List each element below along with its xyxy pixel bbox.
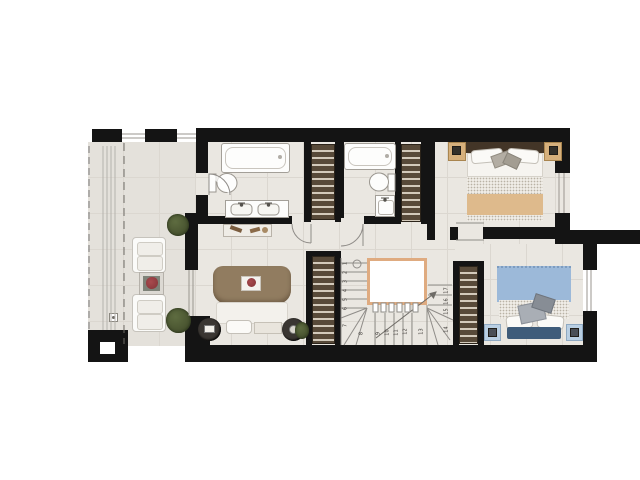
terrace-railing-lines [89, 143, 124, 344]
stair-step-number: 6 [344, 304, 349, 314]
stair-step-number: 9 [377, 329, 382, 339]
stair-circle-symbol [353, 260, 361, 268]
tub-drain-2 [385, 154, 389, 158]
stair-step-number: 10 [386, 328, 391, 338]
stair-step-number: 7 [344, 321, 349, 331]
linework-svg [0, 0, 640, 480]
floor-plan: 1 2 3 4 5 6 7 8 9 10 11 12 13 14 15 16 1… [0, 0, 640, 480]
toilet-2 [370, 173, 396, 191]
stair-step-number: 15 [445, 307, 450, 317]
stair-step-number: 11 [395, 328, 400, 338]
tub-drain-1 [278, 155, 282, 159]
vanity-sinks [231, 204, 279, 215]
window-frames [122, 134, 591, 316]
stair-step-number: 8 [360, 329, 365, 339]
stair-step-number: 12 [404, 327, 409, 337]
stair-step-number: 13 [420, 327, 425, 337]
stair-step-number: 14 [445, 325, 450, 335]
stair-step-number: 17 [445, 286, 450, 296]
stair-step-number: 16 [445, 297, 450, 307]
